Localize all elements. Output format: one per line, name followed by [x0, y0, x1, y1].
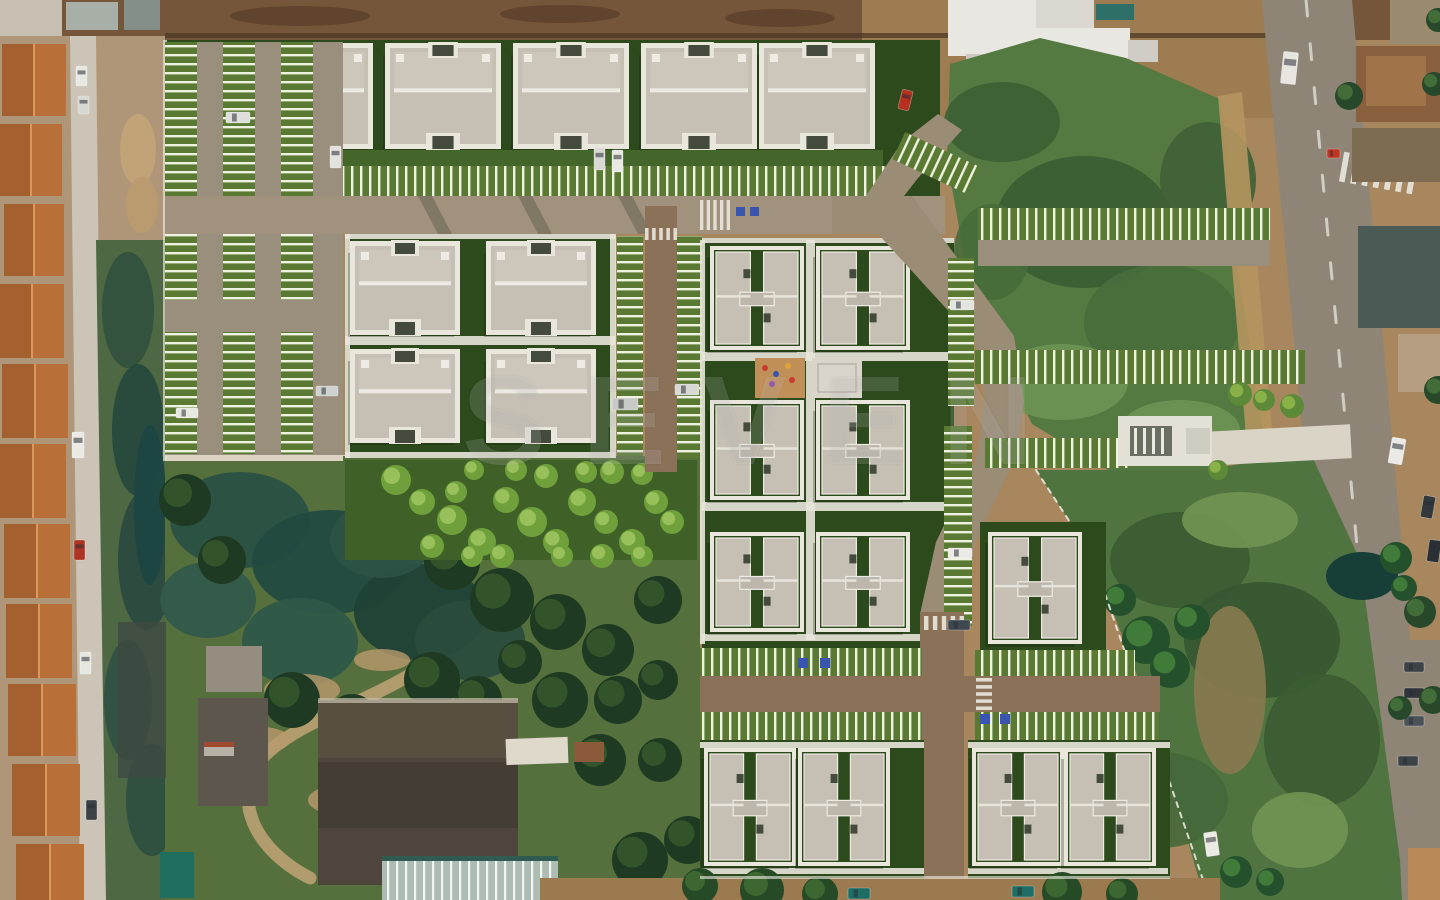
garden-trees [464, 460, 484, 480]
wild-trees [594, 676, 642, 724]
west-vegetation [102, 252, 154, 368]
walkway [700, 742, 924, 748]
villa-block [639, 42, 757, 151]
road-internal [645, 206, 677, 472]
field-texture [944, 82, 1060, 162]
garden-trees [490, 544, 514, 568]
path-trees [1208, 460, 1228, 480]
wild-trees [159, 474, 211, 526]
garden-trees [409, 489, 435, 515]
road-marking-blue [750, 207, 759, 216]
villa-block [484, 348, 596, 445]
garden-trees [600, 460, 624, 484]
plan-cars [950, 300, 974, 310]
wild-trees [532, 672, 588, 728]
east-roof [1366, 56, 1426, 106]
apartment-block [813, 400, 910, 503]
dirt-patches [354, 649, 410, 671]
dirt-texture [230, 6, 370, 26]
west-vegetation [126, 177, 158, 233]
garden-trees [534, 464, 558, 488]
road-marking-blue [798, 658, 808, 668]
terracotta-houses [0, 444, 66, 518]
parking-row [975, 650, 1135, 676]
east-roof-dark [1358, 226, 1440, 328]
parking-row [700, 648, 922, 676]
pool [1096, 4, 1134, 20]
parking-bays [165, 332, 197, 454]
walkway [702, 502, 954, 511]
plan-edge-south [700, 876, 1170, 879]
offsite-structure [0, 0, 62, 36]
road-south [920, 612, 964, 900]
parking-bays [223, 234, 255, 300]
garden-trees [551, 545, 573, 567]
road-marking-blue [820, 658, 830, 668]
playground [755, 358, 805, 398]
parking-bays [281, 332, 313, 454]
field-trees [1104, 584, 1136, 616]
garden-trees [461, 545, 483, 567]
trailer-stripe [204, 742, 234, 747]
street-cars [74, 540, 85, 560]
wild-trees [634, 576, 682, 624]
warehouse-roof-section [318, 762, 518, 828]
wild-trees [638, 738, 682, 782]
parking-bays [617, 236, 643, 456]
dirt-texture [725, 9, 835, 27]
villa-block [511, 42, 629, 151]
parking-bays [281, 42, 313, 196]
terracotta-houses [2, 44, 66, 116]
shed-roof [206, 646, 262, 692]
parked-cars [176, 408, 198, 418]
east-trees [1335, 82, 1363, 110]
parking-bays [677, 236, 702, 458]
apartment-block [707, 400, 804, 503]
parked-cars [316, 386, 338, 396]
villa-block [383, 42, 501, 151]
play-equipment [773, 371, 779, 377]
east-cars [1327, 149, 1340, 158]
street-cars [76, 66, 87, 86]
parking-bays [944, 426, 972, 626]
warehouse-edge [318, 698, 518, 703]
wild-trees [582, 624, 634, 676]
walkway [610, 234, 616, 458]
terracotta-houses [4, 524, 70, 598]
parking-bays [165, 42, 197, 196]
street-cars [86, 800, 97, 820]
villa-block [348, 348, 460, 445]
parked-cars [594, 148, 605, 170]
offsite-white-roof [1128, 40, 1158, 62]
wild-trees [638, 660, 678, 700]
parking-row [700, 712, 922, 740]
road-cross [700, 676, 1160, 712]
greenhouse [382, 858, 558, 900]
street-cars [72, 432, 84, 458]
scene-svg [0, 0, 1440, 900]
terracotta-houses [2, 364, 68, 438]
apartment-block [813, 532, 910, 635]
terracotta-houses [6, 604, 72, 678]
apartment-block [707, 532, 804, 635]
path-trees [1280, 394, 1304, 418]
walkway [700, 240, 705, 644]
field-texture [1264, 674, 1380, 806]
garden-trees [493, 487, 519, 513]
villa-block [757, 42, 875, 151]
east-cars [1404, 662, 1424, 672]
plan-cars [612, 398, 638, 410]
garden-trees [644, 490, 668, 514]
parking-bays [948, 258, 974, 406]
west-vegetation [120, 114, 156, 186]
garden-trees [445, 481, 467, 503]
road-north [165, 196, 945, 234]
offsite-structure [66, 2, 118, 30]
terracotta-houses [0, 124, 62, 196]
walkway [345, 452, 615, 458]
garden-trees [660, 510, 684, 534]
plan-cars [948, 620, 970, 630]
garden-trees [505, 459, 527, 481]
path-trees [1228, 382, 1252, 406]
walkway [702, 634, 954, 641]
villa-block [484, 240, 596, 337]
garden-trees [381, 465, 411, 495]
terracotta-houses [0, 284, 64, 358]
apartment-block [701, 748, 796, 869]
south-cars [1012, 886, 1034, 897]
garden-trees [568, 488, 596, 516]
dirt-texture [500, 5, 620, 23]
wild-trees [264, 672, 320, 728]
offsite-white-roof [1036, 0, 1094, 28]
field-trees [1220, 856, 1252, 888]
wild-trees [498, 640, 542, 684]
facility-slat [1161, 428, 1164, 454]
street-cars [78, 96, 89, 114]
villa-block [348, 240, 460, 337]
facility-annex [1186, 428, 1210, 454]
walkway [165, 455, 345, 461]
garden-trees [590, 544, 614, 568]
road-marking-blue [736, 207, 745, 216]
street-cars [80, 652, 91, 674]
tree-shadow-strip [118, 622, 166, 778]
field-trees [1174, 604, 1210, 640]
east-trees [1388, 696, 1412, 720]
parking-aisle [978, 240, 1270, 266]
parking-bays [223, 332, 255, 454]
east-cars [1280, 51, 1298, 84]
offsite-structure [124, 0, 160, 30]
walkway [345, 234, 615, 239]
apartment-block [813, 246, 910, 353]
play-equipment [762, 365, 768, 371]
garden-trees [631, 545, 653, 567]
wild-trees [470, 568, 534, 632]
terracotta-houses [16, 844, 84, 900]
apartment-block [795, 748, 890, 869]
parked-cars [330, 146, 341, 168]
parking-row [985, 438, 1131, 468]
parked-cars [226, 112, 250, 123]
dirt-patch [1408, 848, 1440, 900]
parking-row [978, 208, 1270, 240]
garden-trees [517, 507, 547, 537]
field-trees [1256, 868, 1284, 896]
apartment-block [707, 246, 804, 353]
field-trees [1380, 542, 1412, 574]
parking-row [975, 350, 1305, 384]
plan-cars [948, 548, 972, 558]
shed [574, 742, 604, 762]
field-texture [1252, 792, 1348, 868]
path-trees [1253, 389, 1275, 411]
terracotta-houses [8, 684, 76, 756]
facility-slat [1152, 428, 1155, 454]
terracotta-houses [12, 764, 80, 836]
aerial-masterplan-photo: SEVEN [0, 0, 1440, 900]
east-cars [1398, 756, 1418, 766]
road-marking-blue [1000, 714, 1010, 724]
walkway [968, 742, 1170, 748]
apartment-block [969, 748, 1064, 869]
white-shed [506, 737, 569, 765]
east-roof [1352, 128, 1440, 182]
road-marking-blue [980, 714, 990, 724]
garden-trees [420, 534, 444, 558]
field-trees [1391, 575, 1417, 601]
garden-trees [575, 461, 597, 483]
wild-trees [198, 536, 246, 584]
teal-container [160, 852, 194, 898]
garden-trees [594, 510, 618, 534]
wild-trees [530, 594, 586, 650]
play-equipment [769, 381, 775, 387]
play-equipment [785, 363, 791, 369]
parked-cars [612, 150, 623, 172]
east-trees [1404, 596, 1436, 628]
field-texture [1182, 492, 1298, 548]
plan-cars [675, 384, 699, 395]
walkway [345, 336, 615, 345]
facility-slat [1143, 428, 1146, 454]
facility-slat [1134, 428, 1137, 454]
apartment-block [985, 532, 1082, 647]
apartment-block [1061, 748, 1156, 869]
parking-bays [165, 234, 197, 300]
terracotta-houses [4, 204, 64, 276]
warehouse-roof-section [318, 700, 518, 758]
play-equipment [789, 377, 795, 383]
south-cars [848, 888, 870, 899]
garden-trees [437, 505, 467, 535]
parking-bays [281, 234, 313, 300]
greenhouse-edge [382, 856, 558, 861]
